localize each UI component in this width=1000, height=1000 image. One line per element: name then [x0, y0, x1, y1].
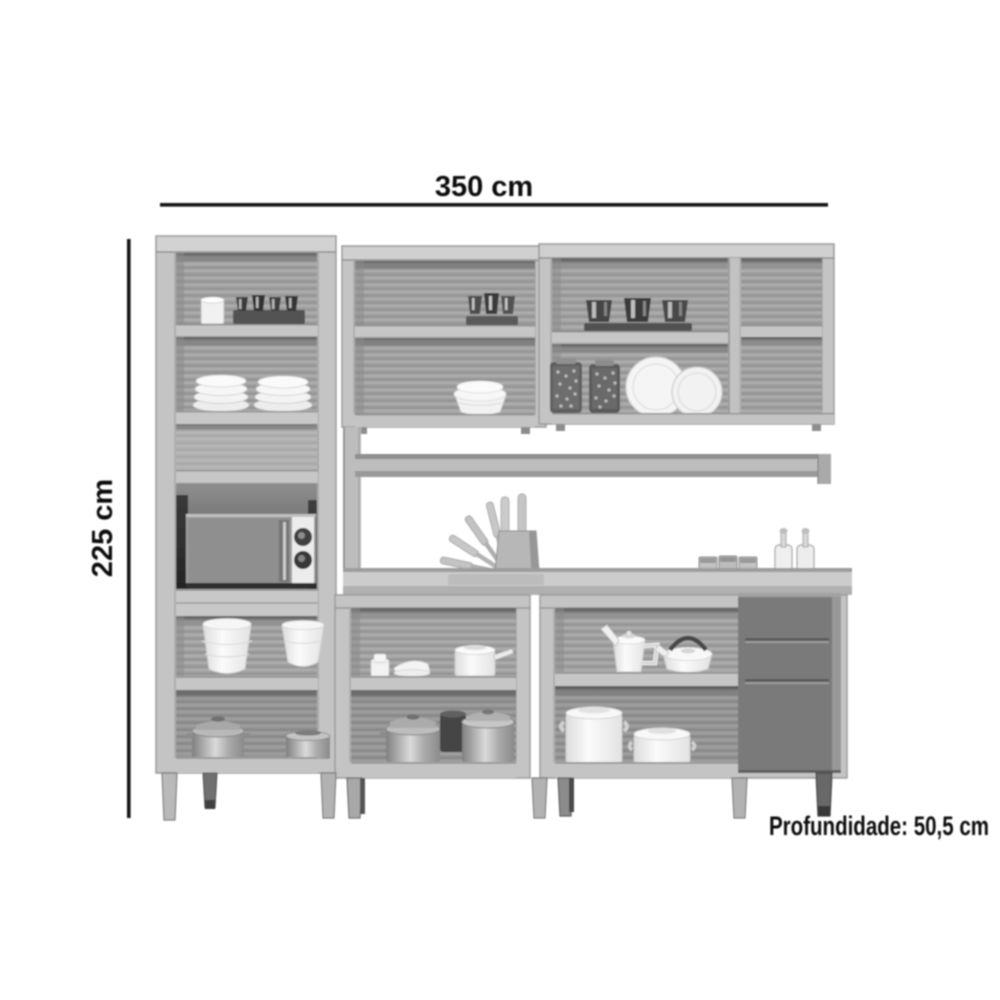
svg-text:Profundidade: 50,5 cm: Profundidade: 50,5 cm [769, 811, 989, 841]
svg-text:225 cm: 225 cm [87, 479, 119, 577]
svg-text:350 cm: 350 cm [435, 171, 533, 203]
